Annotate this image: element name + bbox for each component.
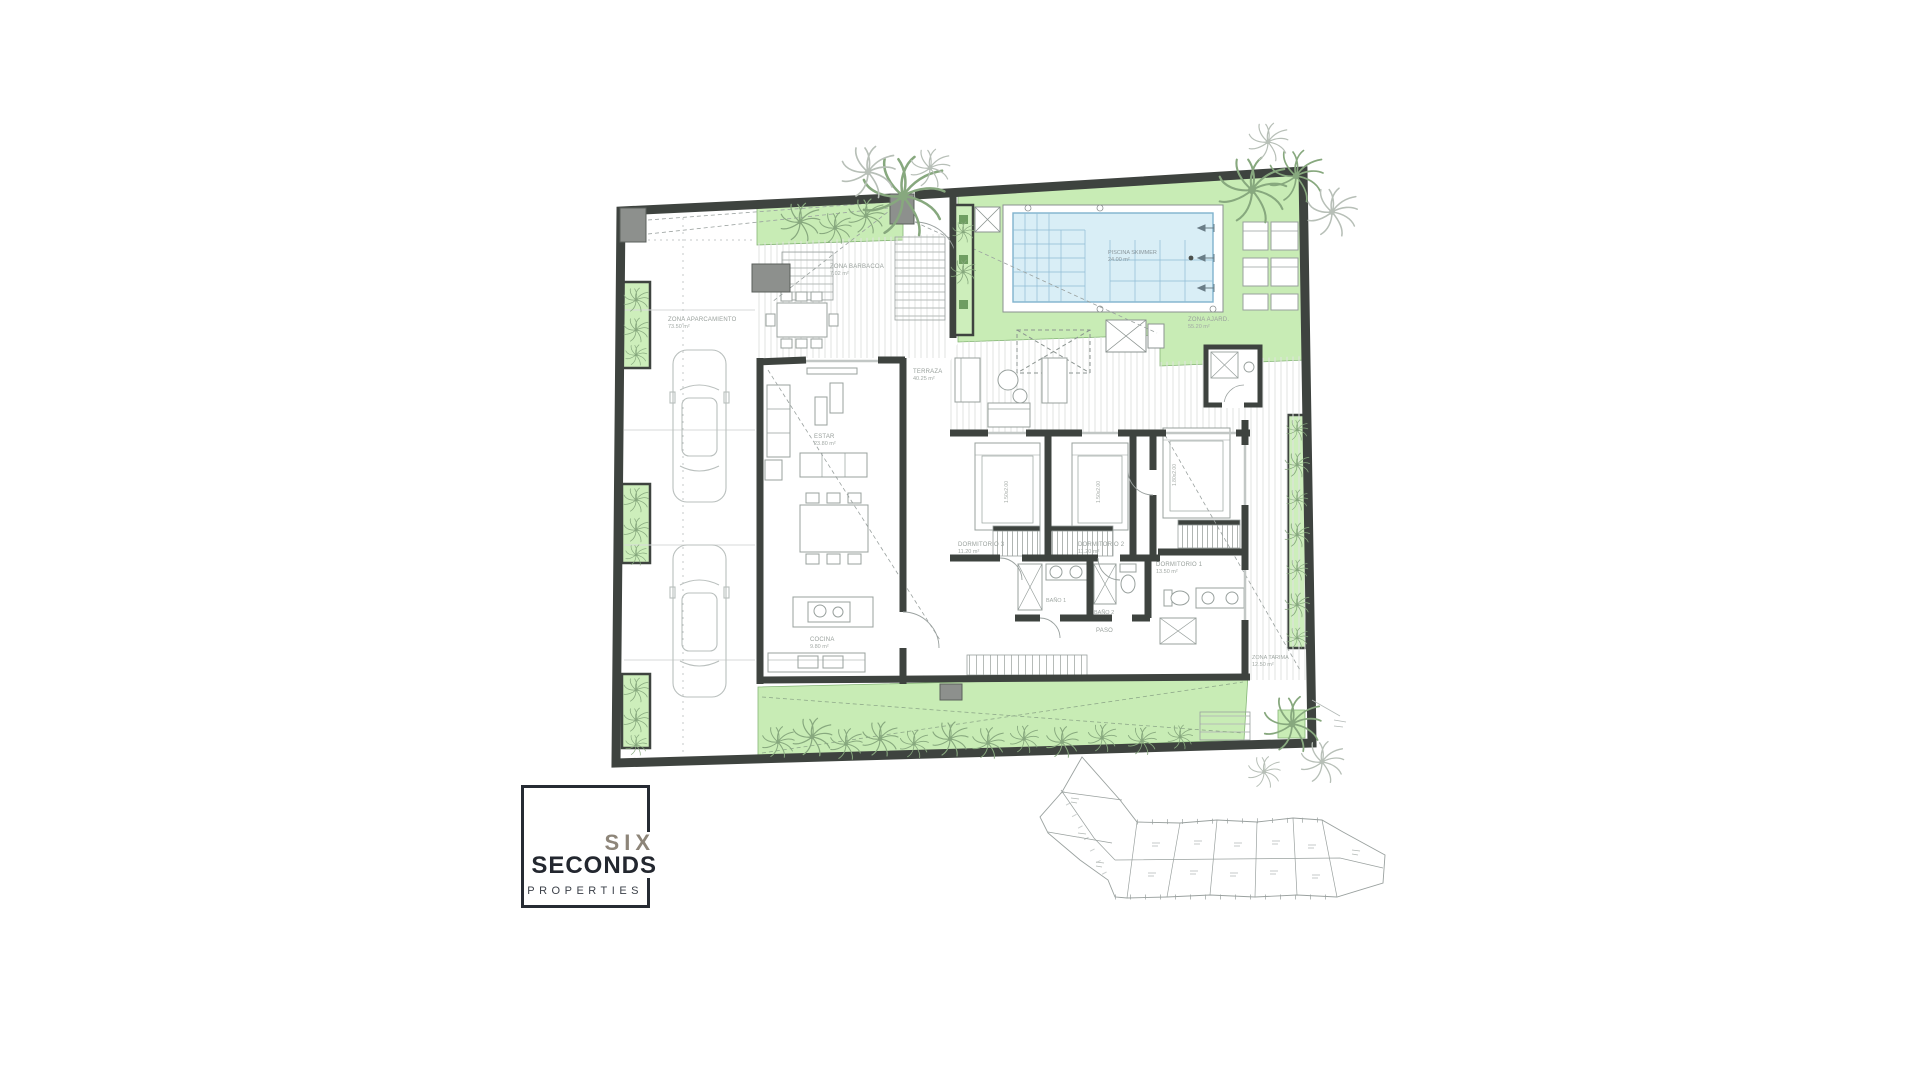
label-piscina: PISCINA SKIMMER: [1108, 250, 1157, 256]
logo-properties-text: PROPERTIES: [525, 886, 645, 897]
floor-plan-page: ZONA APARCAMIENTO 73.50 m² ZONA BARBACOA…: [0, 0, 1920, 1080]
label-cocina: COCINA: [810, 637, 835, 643]
logo-seconds-text: SECONDS: [529, 854, 659, 878]
svg-text:12.50 m²: 12.50 m²: [1252, 662, 1274, 668]
floor-plan-drawing: ZONA APARCAMIENTO 73.50 m² ZONA BARBACOA…: [0, 0, 1920, 1080]
label-dorm2: DORMITORIO 2: [1078, 542, 1125, 548]
label-terraza: TERRAZA: [913, 369, 942, 375]
sun-loungers: [1243, 222, 1298, 310]
bedrooms: [975, 428, 1230, 530]
tv-unit: [807, 368, 857, 374]
site-parcel-plan: [1040, 757, 1385, 898]
label-bed-size-master: 1.80x2.00: [1172, 464, 1178, 486]
label-bed-size-2: 1.50x2.00: [1096, 481, 1102, 503]
label-estar: ESTAR: [814, 434, 835, 440]
gate-pillar-corner: [620, 208, 646, 242]
label-bano1: BAÑO 1: [1046, 597, 1066, 604]
sofa-left: [767, 385, 790, 457]
label-bed-size-1: 1.50x2.00: [1004, 481, 1010, 503]
svg-text:11.20 m²: 11.20 m²: [1078, 549, 1099, 555]
svg-text:7.02 m²: 7.02 m²: [830, 271, 849, 277]
label-dorm1: DORMITORIO 1: [1156, 562, 1203, 568]
label-ajardinada: ZONA AJARD.: [1188, 317, 1229, 323]
svg-text:73.50 m²: 73.50 m²: [668, 324, 690, 330]
label-tarima: ZONA TARIMA: [1252, 655, 1289, 661]
svg-text:13.50 m²: 13.50 m²: [1156, 569, 1178, 575]
svg-text:55.20 m²: 55.20 m²: [1188, 324, 1210, 330]
pool-wc: [1206, 347, 1260, 408]
label-barbacoa: ZONA BARBACOA: [830, 264, 884, 270]
label-bano2: BAÑO 2: [1094, 609, 1114, 616]
logo-six-text: SIX: [603, 832, 657, 854]
label-parking: ZONA APARCAMIENTO: [668, 317, 737, 323]
svg-text:23.80 m²: 23.80 m²: [814, 441, 836, 447]
label-paso: PASO: [1096, 628, 1113, 634]
svg-text:40.25 m²: 40.25 m²: [913, 376, 935, 382]
car-top-view-2: [670, 545, 729, 697]
six-seconds-logo: SIX SECONDS PROPERTIES: [521, 785, 650, 908]
svg-text:24.00 m²: 24.00 m²: [1108, 257, 1130, 263]
svg-text:11.20 m²: 11.20 m²: [958, 549, 979, 555]
svg-text:9.80 m²: 9.80 m²: [810, 644, 829, 650]
car-top-view-1: [670, 350, 729, 502]
corner-annotation: [1312, 700, 1346, 727]
label-dorm3: DORMITORIO 3: [958, 542, 1005, 548]
